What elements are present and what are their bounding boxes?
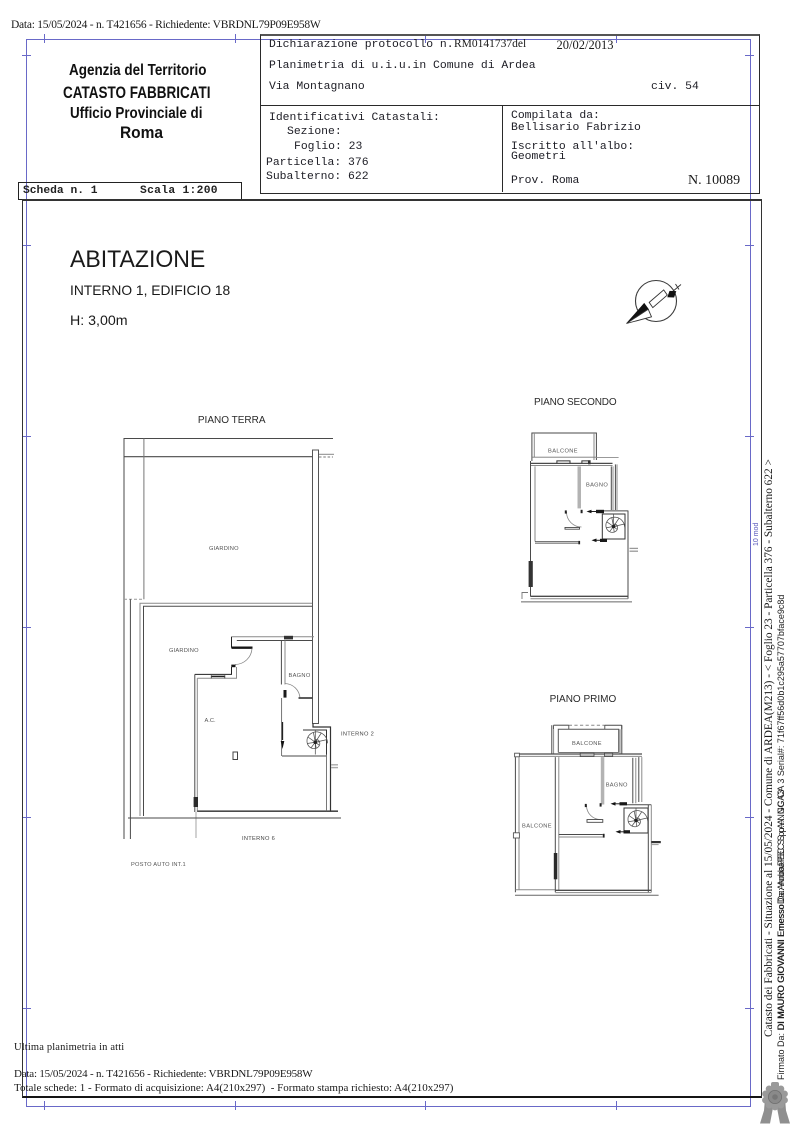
svg-text:POSTO AUTO INT.1: POSTO AUTO INT.1	[131, 862, 186, 868]
svg-text:INTERNO 6: INTERNO 6	[242, 836, 275, 842]
svg-text:BALCONE: BALCONE	[572, 741, 602, 747]
svg-text:BAGNO: BAGNO	[586, 483, 608, 489]
svg-text:GIARDINO: GIARDINO	[169, 648, 199, 654]
svg-text:BALCONE: BALCONE	[548, 449, 578, 455]
svg-text:BALCONE: BALCONE	[522, 824, 552, 830]
svg-text:GIARDINO: GIARDINO	[209, 546, 239, 552]
svg-text:INTERNO 2: INTERNO 2	[341, 732, 374, 738]
svg-text:BAGNO: BAGNO	[289, 673, 311, 679]
svg-text:BAGNO: BAGNO	[606, 783, 628, 789]
svg-text:A.C.: A.C.	[205, 718, 216, 724]
